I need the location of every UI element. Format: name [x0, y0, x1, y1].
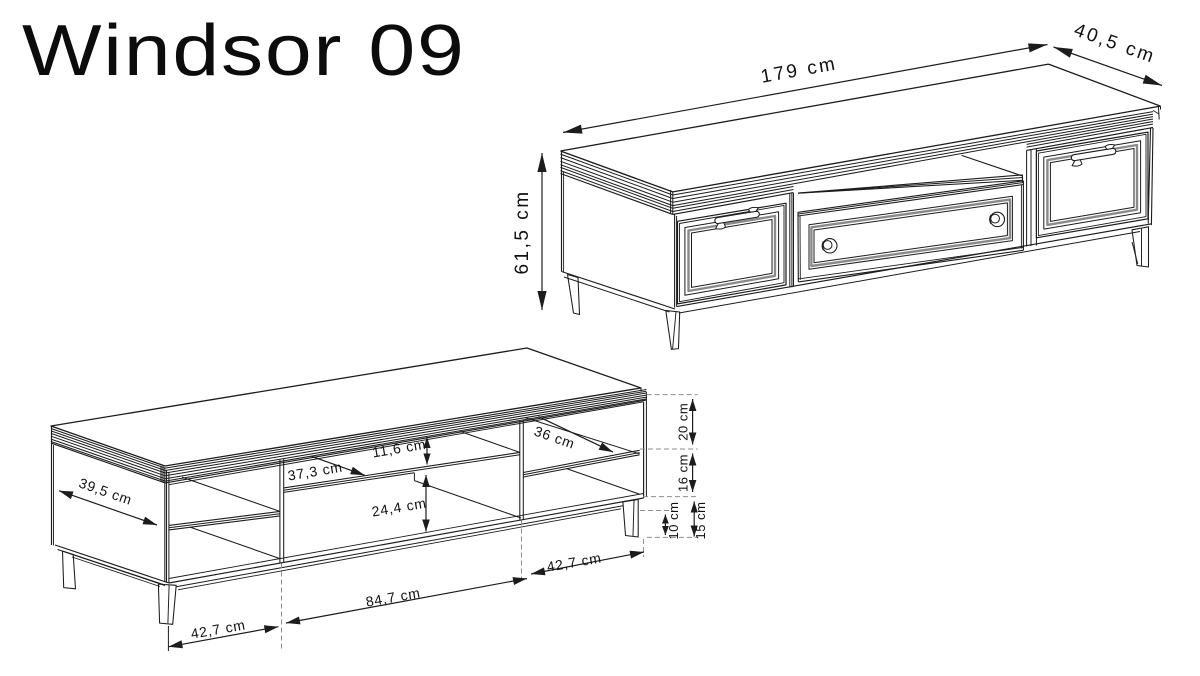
svg-text:84,7 cm: 84,7 cm — [364, 584, 421, 609]
svg-text:15 cm: 15 cm — [693, 502, 708, 540]
svg-text:40,5 cm: 40,5 cm — [1071, 20, 1158, 68]
svg-text:61,5 cm: 61,5 cm — [512, 189, 533, 274]
svg-text:39,5 cm: 39,5 cm — [77, 475, 135, 508]
svg-text:20 cm: 20 cm — [676, 403, 691, 441]
svg-text:16 cm: 16 cm — [676, 454, 691, 492]
svg-text:24,4 cm: 24,4 cm — [371, 495, 428, 520]
svg-text:179 cm: 179 cm — [759, 53, 839, 87]
svg-text:42,7 cm: 42,7 cm — [545, 549, 602, 574]
svg-text:10 cm: 10 cm — [666, 502, 681, 540]
